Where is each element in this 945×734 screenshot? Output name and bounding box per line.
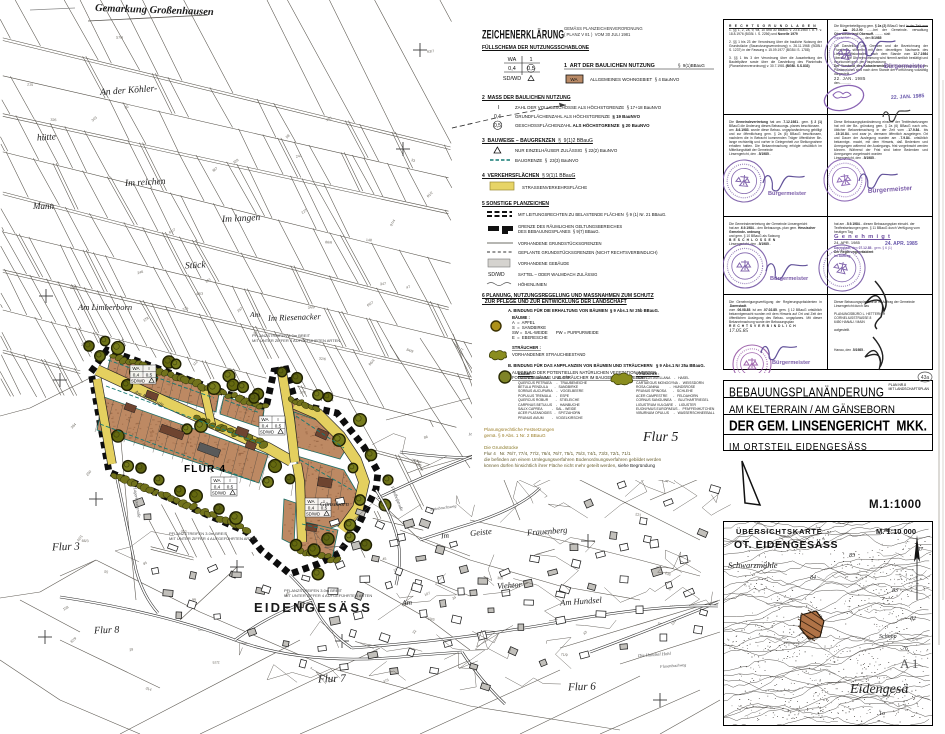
svg-text:329: 329 [232, 158, 239, 165]
svg-text:0,4: 0,4 [508, 66, 516, 72]
svg-text:95: 95 [142, 561, 147, 566]
svg-text:43: 43 [582, 630, 588, 636]
svg-text:MIT LEITUNGSRECHTEN ZU BELASTE: MIT LEITUNGSRECHTEN ZU BELASTENDE FLÄCHE… [518, 212, 666, 217]
svg-text:SD/WD: SD/WD [212, 491, 226, 496]
svg-text:BAUGRENZE § 23(3) BauNVO: BAUGRENZE § 23(3) BauNVO [515, 158, 579, 163]
svg-text:0,5: 0,5 [227, 484, 234, 489]
svg-text:76: 76 [902, 646, 908, 652]
svg-text:WA: WA [213, 478, 221, 483]
svg-text:326: 326 [50, 118, 56, 122]
svg-text:WA: WA [261, 417, 269, 422]
svg-text:370: 370 [300, 390, 306, 394]
svg-text:WA: WA [570, 77, 578, 82]
svg-text:32/9: 32/9 [69, 636, 77, 644]
svg-text:71: 71 [459, 347, 465, 353]
svg-text:1: 1 [529, 57, 532, 63]
svg-text:WA: WA [307, 499, 315, 504]
svg-text:112: 112 [192, 360, 199, 367]
svg-text:45: 45 [382, 557, 386, 561]
svg-text:STRÄUCHER :: STRÄUCHER : [512, 345, 541, 350]
svg-text:57/6: 57/6 [116, 36, 123, 40]
svg-text:HÖHENLINIEN: HÖHENLINIEN [518, 282, 547, 287]
svg-text:71/9: 71/9 [560, 653, 567, 658]
svg-text:1o: 1o [879, 711, 885, 717]
svg-text:0,4: 0,4 [262, 423, 269, 428]
svg-text:82: 82 [910, 616, 916, 622]
svg-text:47: 47 [406, 285, 411, 290]
svg-text:Schopp: Schopp [879, 634, 897, 640]
svg-text:63/7: 63/7 [427, 49, 434, 54]
svg-text:55: 55 [104, 570, 109, 575]
svg-text:83: 83 [892, 588, 898, 594]
svg-text:E = EBERESCHE: E = EBERESCHE [512, 335, 548, 340]
svg-text:235: 235 [664, 571, 671, 577]
svg-text:A. BINDUNG FÜR DIE ERHALTUNG V: A. BINDUNG FÜR DIE ERHALTUNG VON BÄUMEN … [508, 308, 659, 313]
svg-text:Bürgermeister: Bürgermeister [884, 64, 926, 70]
svg-text:314: 314 [145, 686, 152, 692]
svg-text:347: 347 [380, 282, 386, 286]
svg-text:148: 148 [366, 238, 372, 242]
svg-text:97/4: 97/4 [389, 219, 396, 227]
svg-text:373: 373 [382, 678, 389, 684]
svg-text:34/9: 34/9 [308, 305, 315, 310]
svg-text:86/4: 86/4 [368, 359, 376, 367]
svg-text:30: 30 [124, 105, 129, 110]
svg-text:158: 158 [62, 605, 69, 612]
svg-text:I: I [277, 417, 278, 422]
svg-text:303: 303 [91, 115, 98, 122]
svg-text:84/9: 84/9 [406, 348, 414, 354]
svg-text:43a: 43a [921, 375, 930, 381]
svg-text:69/3: 69/3 [427, 617, 435, 622]
svg-text:58: 58 [285, 134, 291, 140]
svg-text:B. BINDUNG FÜR DAS ANPFLANZEN: B. BINDUNG FÜR DAS ANPFLANZEN VON BÄUMEN… [508, 363, 705, 368]
svg-text:387: 387 [211, 166, 218, 173]
svg-text:GEPLANTE GRUNDSTÜCKSGRENZEN (N: GEPLANTE GRUNDSTÜCKSGRENZEN (NICHT RECHT… [518, 250, 658, 255]
svg-text:215: 215 [27, 83, 33, 88]
svg-text:0,5: 0,5 [275, 423, 282, 428]
svg-text:SD/WD: SD/WD [306, 512, 320, 517]
svg-text:66/3: 66/3 [82, 539, 89, 543]
svg-text:86/6: 86/6 [325, 240, 332, 244]
svg-text:WA: WA [508, 57, 517, 63]
svg-text:24. APR. 1985: 24. APR. 1985 [885, 241, 918, 247]
svg-text:SD/WD: SD/WD [260, 430, 274, 435]
svg-text:87: 87 [917, 547, 924, 553]
svg-text:84: 84 [810, 574, 816, 581]
svg-text:85: 85 [849, 553, 855, 559]
svg-text:DES BEBAUUNGSPLANES § 9(7) BB: DES BEBAUUNGSPLANES § 9(7) BBauG. [518, 229, 600, 234]
svg-text:Bürgermeister: Bürgermeister [772, 360, 811, 366]
svg-text:0,4: 0,4 [133, 372, 140, 377]
svg-text:86: 86 [423, 435, 428, 440]
svg-text:VORHANDENER STRAUCHBESTAND: VORHANDENER STRAUCHBESTAND [512, 352, 585, 357]
svg-text:WA: WA [132, 366, 140, 371]
svg-text:STRASSENVERKEHRSFLÄCHE: STRASSENVERKEHRSFLÄCHE [522, 185, 587, 190]
svg-text:SATTEL – ODER WALMDACH ZULÄSSI: SATTEL – ODER WALMDACH ZULÄSSIG [518, 272, 597, 277]
svg-text:48/3: 48/3 [196, 292, 203, 296]
svg-text:22. JAN. 1985: 22. JAN. 1985 [891, 93, 925, 101]
svg-text:34: 34 [451, 595, 456, 600]
svg-text:SD/WD: SD/WD [488, 272, 505, 278]
svg-text:246: 246 [137, 270, 144, 275]
svg-text:SD/WD: SD/WD [503, 76, 521, 82]
svg-text:33: 33 [411, 158, 416, 163]
svg-text:SD/WD: SD/WD [131, 379, 145, 384]
svg-text:394: 394 [70, 422, 77, 429]
svg-text:81/2: 81/2 [426, 191, 434, 199]
svg-text:Bürgermeister: Bürgermeister [768, 191, 807, 197]
svg-text:ALLGEMEINES WOHNGEBIET § 4 Ba: ALLGEMEINES WOHNGEBIET § 4 BauNVO [590, 77, 680, 82]
svg-text:378: 378 [142, 316, 149, 323]
svg-text:1 ART DER BAULICHEN NUTZUNG: 1 ART DER BAULICHEN NUTZUNG [564, 63, 655, 69]
svg-text:241: 241 [296, 154, 303, 159]
svg-text:66/7: 66/7 [366, 300, 374, 307]
svg-text:32: 32 [412, 629, 418, 635]
svg-text:32/6: 32/6 [319, 357, 326, 362]
svg-text:I: I [229, 478, 230, 483]
svg-text:236: 236 [70, 286, 76, 290]
svg-text:0,4: 0,4 [214, 484, 221, 489]
svg-text:250: 250 [85, 470, 92, 477]
svg-text:VORHANDENE GEBÄUDE: VORHANDENE GEBÄUDE [518, 261, 569, 266]
svg-text:§ 9(1)BBauG: § 9(1)BBauG [678, 63, 705, 68]
svg-text:29: 29 [129, 647, 134, 652]
svg-text:107: 107 [424, 591, 431, 597]
svg-text:0,5: 0,5 [146, 372, 153, 377]
svg-text:361: 361 [205, 277, 212, 284]
svg-text:81/7: 81/7 [168, 228, 176, 235]
svg-text:135: 135 [325, 116, 332, 122]
svg-text:0,4: 0,4 [308, 505, 315, 510]
svg-text:NUR EINZELHÄUSER ZULÄSSIG § 2: NUR EINZELHÄUSER ZULÄSSIG § 22(2) BauNVO [515, 148, 618, 153]
svg-text:VORHANDENE GRUNDSTÜCKSGRENZEN: VORHANDENE GRUNDSTÜCKSGRENZEN [518, 241, 602, 246]
svg-text:221: 221 [635, 512, 642, 517]
svg-text:I: I [148, 366, 149, 371]
svg-text:57/2: 57/2 [212, 661, 219, 665]
svg-text:Bürgermeister: Bürgermeister [770, 276, 809, 282]
